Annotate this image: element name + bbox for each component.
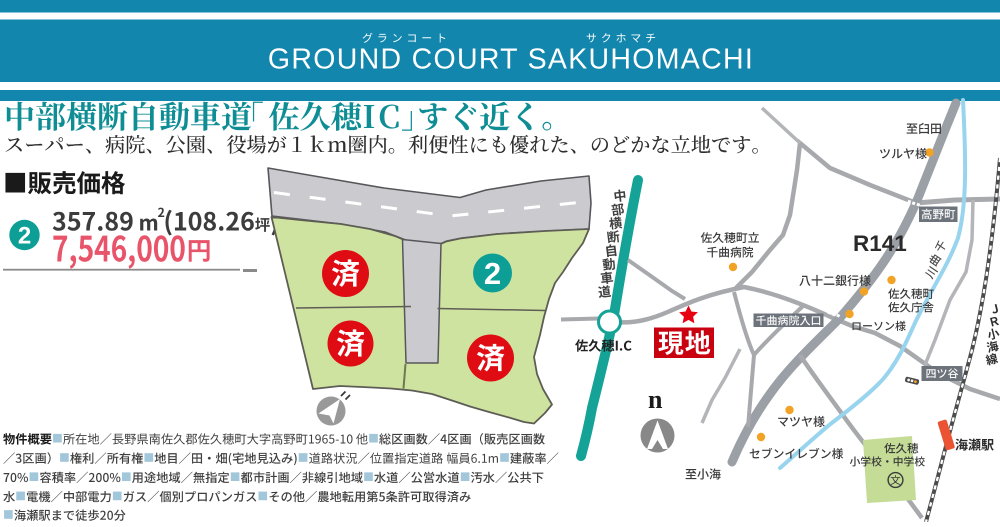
svg-text:2: 2 (484, 256, 501, 291)
svg-text:n: n (648, 385, 663, 414)
svg-text:R141: R141 (853, 231, 907, 256)
svg-text:GROUND COURT SAKUHOMACHI: GROUND COURT SAKUHOMACHI (268, 44, 754, 76)
svg-text:2: 2 (18, 223, 31, 250)
